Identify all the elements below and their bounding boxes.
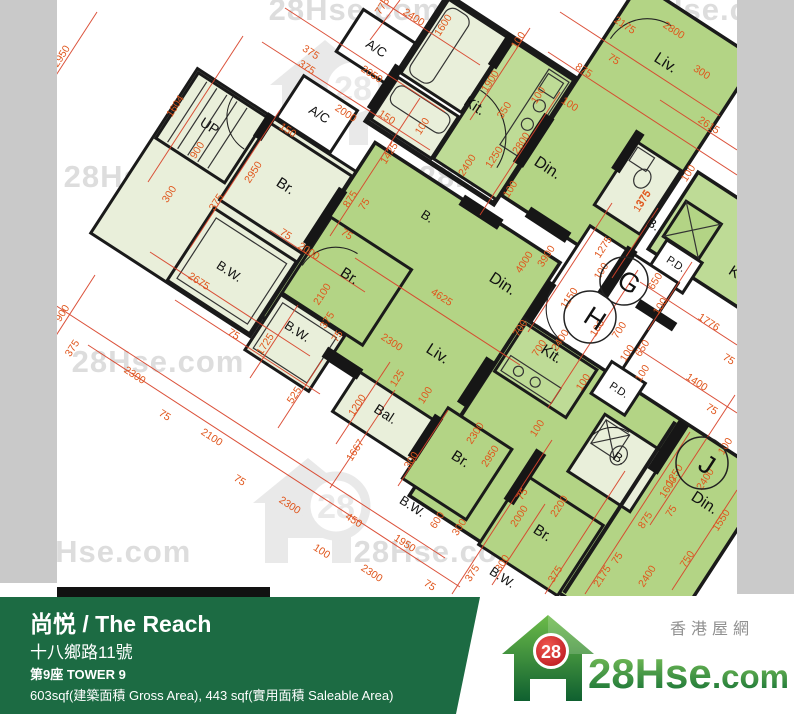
area-label: 603sqf(建築面積 Gross Area), 443 sqf(實用面積 Sa… [30, 688, 393, 703]
house-door [530, 679, 566, 701]
logo-name: 28Hse [588, 650, 712, 697]
floorplan-image: 282828 28Hse.com28Hse.com28Hse.com28Hse.… [0, 0, 794, 714]
left-gray-strip [0, 0, 57, 583]
tower-label: 第9座 TOWER 9 [30, 667, 126, 682]
estate-address: 十八鄉路11號 [30, 643, 133, 662]
logo-tld: .com [712, 658, 789, 695]
logo-tagline: 香港屋網 [670, 620, 754, 638]
logo-28-number: 28 [541, 642, 561, 662]
right-gray-strip [737, 0, 794, 594]
footer-bar: 尚悦 / The Reach 十八鄉路11號 第9座 TOWER 9 603sq… [0, 597, 480, 714]
black-divider-bar [57, 587, 270, 597]
floorplan-page: 282828 28Hse.com28Hse.com28Hse.com28Hse.… [0, 0, 794, 714]
site-logo: 28 28Hse .com 香港屋網 [502, 615, 789, 701]
watermark-text: 28Hse.com [72, 344, 245, 379]
estate-title: 尚悦 / The Reach [30, 611, 211, 637]
